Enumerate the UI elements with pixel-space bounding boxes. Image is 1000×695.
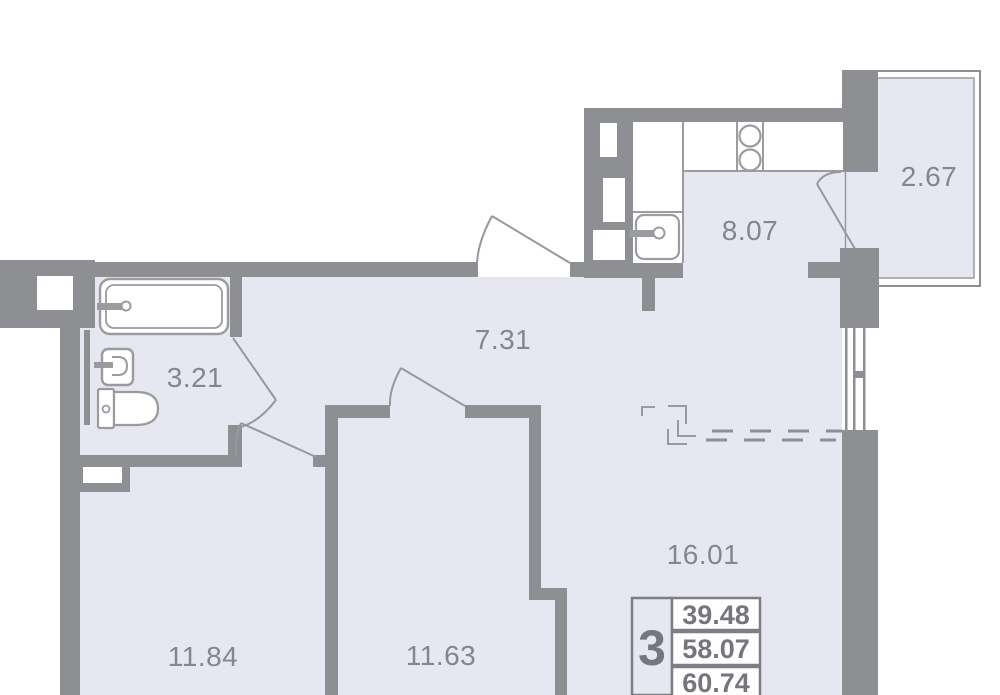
entry-door-opening <box>478 262 570 277</box>
bathtub-icon <box>97 279 228 334</box>
wall-segment <box>325 405 338 695</box>
wall-segment <box>325 405 390 418</box>
window-mullion <box>853 371 865 378</box>
room-area-label-balcony: 2.67 <box>901 161 958 192</box>
room-area-label-living-room: 16.01 <box>667 539 740 570</box>
stamp-floor-area: 58.07 <box>682 634 750 664</box>
wall-segment <box>584 263 683 278</box>
duct-niche <box>593 230 625 260</box>
wall-segment <box>808 262 842 278</box>
wall-segment <box>842 70 878 172</box>
room-area-label-bathroom: 3.21 <box>167 362 224 393</box>
kitchen-sink-icon <box>629 215 679 259</box>
wall-segment <box>840 248 879 328</box>
duct-niche <box>600 123 617 157</box>
wall-segment <box>584 108 845 122</box>
wall-segment <box>60 455 237 467</box>
toilet-icon <box>98 389 158 428</box>
wall-segment <box>529 405 541 600</box>
bedroom-niche <box>83 467 122 483</box>
floor-plan-page: 2.67 8.07 7.31 3.21 16.01 11.84 11.63 3 … <box>0 0 1000 695</box>
room-area-label-bedroom-center: 11.63 <box>406 640 477 671</box>
stamp-living-area: 39.48 <box>682 600 750 630</box>
wall-segment <box>60 326 80 695</box>
wall-segment <box>642 278 655 311</box>
window-right <box>842 328 878 430</box>
room-area-label-kitchen: 8.07 <box>722 215 779 246</box>
entry-door-arc <box>477 216 570 263</box>
wall-segment <box>842 430 878 695</box>
stamp-room-count: 3 <box>638 620 666 676</box>
wall-segment <box>555 588 567 695</box>
duct-niche <box>603 178 625 222</box>
wall-segment <box>570 262 586 277</box>
stamp-total-area: 60.74 <box>682 668 750 695</box>
window-frame-line <box>863 328 866 430</box>
niche <box>37 276 73 310</box>
room-area-label-bedroom-left: 11.84 <box>168 641 239 672</box>
floor-plan-drawing: 2.67 8.07 7.31 3.21 16.01 11.84 11.63 3 … <box>0 0 1000 695</box>
wall-segment <box>95 262 478 277</box>
window-frame-line <box>845 328 848 430</box>
wall-segment <box>230 277 242 337</box>
room-area-label-hallway: 7.31 <box>475 324 532 355</box>
window-frame-line <box>853 328 856 430</box>
wall-shaft-strip <box>84 330 90 425</box>
